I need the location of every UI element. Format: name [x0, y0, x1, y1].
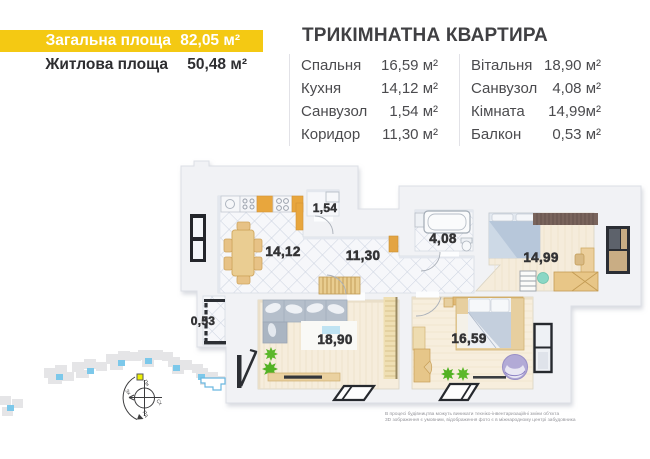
svg-text:1,54: 1,54	[313, 201, 338, 215]
svg-text:0,53: 0,53	[191, 314, 216, 328]
svg-text:Сх: Сх	[155, 398, 164, 407]
svg-text:16,59: 16,59	[451, 331, 486, 346]
svg-text:4,08: 4,08	[429, 231, 457, 246]
svg-text:14,12: 14,12	[265, 244, 300, 259]
svg-text:Пн: Пн	[142, 379, 151, 388]
svg-text:18,90: 18,90	[317, 332, 352, 347]
svg-text:14,99: 14,99	[523, 250, 558, 265]
svg-text:11,30: 11,30	[346, 248, 381, 263]
